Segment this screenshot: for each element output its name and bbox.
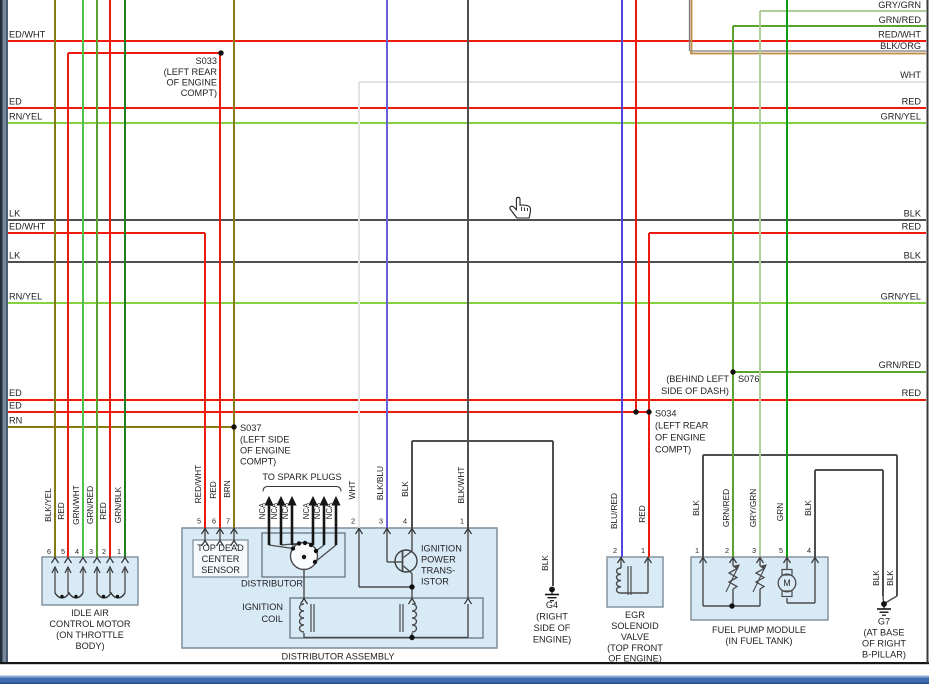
diagram-label: ISTOR xyxy=(421,577,449,587)
wire-color-label: WHT xyxy=(347,481,357,500)
window-edge-strip xyxy=(0,0,3,663)
wire-color-label: GRN/RED xyxy=(721,489,731,527)
wire-color-label: RED xyxy=(56,502,66,520)
distributor-contact-dot xyxy=(314,549,318,553)
wire-internal xyxy=(883,596,884,602)
wire-color-label: BLK xyxy=(885,570,895,586)
wire-color-label: BLK/YEL xyxy=(43,488,53,522)
diagram-label: BODY) xyxy=(75,641,104,651)
cursor-hand-icon xyxy=(510,197,531,218)
wire-color-label: GRY/GRN xyxy=(748,489,758,528)
diagram-label: 3 xyxy=(89,547,93,556)
winding-dot xyxy=(74,595,77,598)
diagram-label: WHT xyxy=(900,70,921,80)
wire-color-label: GRN/WHT xyxy=(71,485,81,525)
diagram-bottom-border xyxy=(0,662,929,664)
diagram-label: BLK/ORG xyxy=(880,41,921,51)
wire-color-label: GRN/BLK xyxy=(113,486,123,523)
diagram-label: SENSOR xyxy=(201,565,240,575)
diagram-label: ED/WHT xyxy=(9,30,46,40)
diagram-label: BLK xyxy=(904,251,922,261)
diagram-label: RED/WHT xyxy=(878,30,921,40)
diagram-right-border xyxy=(927,0,929,663)
taskbar-strip xyxy=(0,676,929,678)
splice-junction-dot xyxy=(409,635,414,640)
distributor-contact-dot xyxy=(291,546,295,550)
wire-color-label: BLK xyxy=(871,570,881,586)
wire-color-label: BLK xyxy=(691,500,701,516)
diagram-label: G7 xyxy=(878,617,890,627)
diagram-label: 4 xyxy=(75,547,79,556)
idle-air-control-motor-box xyxy=(42,557,138,605)
wire-color-label: BLK xyxy=(400,481,410,497)
diagram-label: (LEFT REAR xyxy=(164,67,218,77)
diagram-label: RED xyxy=(902,97,922,107)
diagram-label: COIL xyxy=(262,614,283,624)
window-edge-strip xyxy=(3,0,7,663)
wire-color-label: RED xyxy=(208,481,218,499)
diagram-label: 5 xyxy=(197,517,201,526)
diagram-label: (IN FUEL TANK) xyxy=(725,636,792,646)
diagram-label: GRN/YEL xyxy=(881,112,921,122)
diagram-label: 4 xyxy=(403,517,407,526)
fuel-pump-module-box xyxy=(691,557,828,620)
diagram-label: COMPT) xyxy=(655,445,691,455)
diagram-label: ED xyxy=(9,388,22,398)
diagram-label: 3 xyxy=(379,517,383,526)
diagram-label: 2 xyxy=(351,517,355,526)
diagram-label: GRN/YEL xyxy=(881,292,921,302)
diagram-label: IGNITION xyxy=(421,544,462,554)
diagram-label: CENTER xyxy=(202,554,240,564)
diagram-label: RN/YEL xyxy=(9,112,42,122)
wire-color-label: NCA xyxy=(325,502,334,519)
distributor-contact-dot xyxy=(309,543,313,547)
brace-icon xyxy=(263,487,341,492)
wire-color-label: BLU/RED xyxy=(609,493,619,529)
wire-color-label: GRN/RED xyxy=(85,486,95,524)
diagram-label: SIDE OF DASH) xyxy=(661,386,729,396)
diagram-label: COMPT) xyxy=(181,88,217,98)
diagram-label: FUEL PUMP MODULE xyxy=(712,625,806,635)
diagram-label: 1 xyxy=(695,546,699,555)
diagram-label: B-PILLAR) xyxy=(862,650,906,660)
winding-dot xyxy=(116,595,119,598)
diagram-label: RED xyxy=(902,388,922,398)
diagram-label: (LEFT REAR xyxy=(655,421,709,431)
wire-color-label: BLK/BLU xyxy=(375,466,385,500)
diagram-label: IGNITION xyxy=(242,602,283,612)
motor-label: M xyxy=(783,578,790,588)
splice-junction-dot xyxy=(409,584,414,589)
diagram-label: 6 xyxy=(47,547,51,556)
diagram-label: RN xyxy=(9,416,22,426)
diagram-label: 7 xyxy=(226,517,230,526)
diagram-label: S033 xyxy=(196,56,217,66)
splice-junction-dot xyxy=(218,50,223,55)
diagram-label: ENGINE) xyxy=(533,635,571,645)
wire-color-label: BLK xyxy=(540,555,550,571)
diagram-label: DISTRIBUTOR xyxy=(241,579,303,589)
diagram-label: (AT BASE xyxy=(863,628,904,638)
diagram-label: (LEFT SIDE xyxy=(240,435,289,445)
wire-color-label: BRN xyxy=(222,480,232,498)
wire-color-label: RED xyxy=(98,502,108,520)
diagram-label: RED xyxy=(902,222,922,232)
splice-junction-dot xyxy=(646,409,651,414)
diagram-label: GRN/RED xyxy=(879,15,922,25)
diagram-label: LK xyxy=(9,251,21,261)
diagram-label: (BEHIND LEFT xyxy=(666,374,729,384)
diagram-label: ED xyxy=(9,97,22,107)
diagram-label: S037 xyxy=(240,423,261,433)
wire-color-label: NCA xyxy=(302,502,311,519)
diagram-label: EGR xyxy=(625,610,645,620)
diagram-label: COMPT) xyxy=(240,457,276,467)
diagram-label: (ON THROTTLE xyxy=(56,630,124,640)
diagram-label: 6 xyxy=(212,517,216,526)
diagram-label: ED xyxy=(9,401,22,411)
wire-color-label: NCA xyxy=(281,502,290,519)
diagram-label: 5 xyxy=(779,546,783,555)
diagram-label: (TOP FRONT xyxy=(607,643,663,653)
splice-junction-dot xyxy=(729,603,734,608)
diagram-label: 1 xyxy=(460,517,464,526)
diagram-label: 5 xyxy=(61,547,65,556)
winding-dot xyxy=(60,595,63,598)
diagram-label: (RIGHT xyxy=(536,612,568,622)
diagram-label: LK xyxy=(9,209,21,219)
wire-color-label: RED xyxy=(637,505,647,523)
diagram-label: TO SPARK PLUGS xyxy=(262,472,341,482)
diagram-label: 2 xyxy=(725,546,729,555)
diagram-label: 2 xyxy=(613,546,617,555)
diagram-label: TRANS- xyxy=(421,566,455,576)
diagram-label: 3 xyxy=(752,546,756,555)
wire-color-label: BLK xyxy=(803,500,813,516)
diagram-label: 4 xyxy=(807,546,811,555)
taskbar-strip xyxy=(0,678,929,683)
splice-junction-dot xyxy=(633,409,638,414)
diagram-label: POWER xyxy=(421,555,456,565)
diagram-label: OF RIGHT xyxy=(862,639,906,649)
diagram-label: DISTRIBUTOR ASSEMBLY xyxy=(282,652,395,662)
diagram-label: 2 xyxy=(102,547,106,556)
window-edge-strip xyxy=(6,0,8,663)
winding-dot xyxy=(102,595,105,598)
diagram-label: SOLENOID xyxy=(611,621,659,631)
wire-color-label: NCA xyxy=(270,502,279,519)
egr-solenoid-valve-box xyxy=(607,557,663,607)
diagram-label: CONTROL MOTOR xyxy=(49,619,131,629)
diagram-label: VALVE xyxy=(621,632,649,642)
wiring-diagram-page: MED/WHTEDRN/YELLKED/WHTLKRN/YELEDEDRNGRY… xyxy=(0,0,929,684)
splice-junction-dot xyxy=(231,424,236,429)
diagram-label: OF ENGINE xyxy=(240,446,291,456)
diagram-label: TOP DEAD xyxy=(197,543,244,553)
wiring-diagram-canvas: MED/WHTEDRN/YELLKED/WHTLKRN/YELEDEDRNGRY… xyxy=(0,0,929,684)
wire-internal xyxy=(886,596,897,603)
distributor-contact-dot xyxy=(313,560,317,564)
diagram-label: OF ENGINE xyxy=(166,78,217,88)
wire-color-label: GRN xyxy=(775,503,785,521)
diagram-label: 1 xyxy=(641,546,645,555)
diagram-label: IDLE AIR xyxy=(71,608,109,618)
diagram-label: S076 xyxy=(738,374,759,384)
diagram-label: G4 xyxy=(546,600,558,610)
wire-color-label: NCA xyxy=(313,502,322,519)
diagram-label: 1 xyxy=(117,547,121,556)
distributor-contact-dot xyxy=(297,541,301,545)
diagram-label: GRN/RED xyxy=(879,360,922,370)
diagram-label: BLK xyxy=(904,209,922,219)
diagram-label: RN/YEL xyxy=(9,292,42,302)
diagram-label: GRY/GRN xyxy=(878,0,921,10)
distributor-contact-dot xyxy=(302,555,306,559)
diagram-label: OF ENGINE xyxy=(655,433,706,443)
splice-junction-dot xyxy=(730,369,735,374)
wire-color-label: BLK/WHT xyxy=(456,467,466,504)
wire-color-label: RED/WHT xyxy=(193,465,203,504)
distributor-contact-dot xyxy=(303,541,307,545)
wire-color-label: NCA xyxy=(258,502,267,519)
diagram-label: SIDE OF xyxy=(534,623,571,633)
diagram-label: ED/WHT xyxy=(9,222,46,232)
diagram-label: S034 xyxy=(655,409,676,419)
